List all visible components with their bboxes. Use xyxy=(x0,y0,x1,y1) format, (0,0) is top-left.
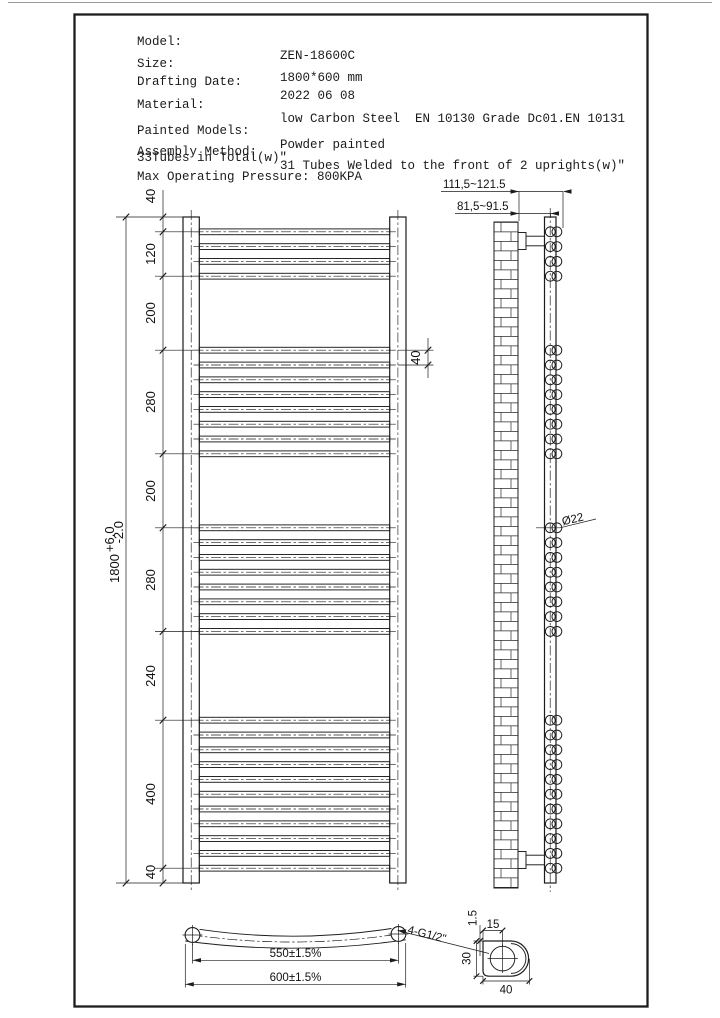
dim-overall-height: 1800+6.0-2.0 xyxy=(102,521,126,583)
tube-curve-centerline xyxy=(193,934,399,942)
front-view xyxy=(183,210,406,890)
tube-rows xyxy=(194,229,396,871)
dim-connections: 4-G1/2" xyxy=(406,924,447,945)
dim-offset: 15 xyxy=(487,919,500,931)
dim-centres: 550±1.5% xyxy=(270,948,322,960)
top-bracket-arm xyxy=(526,236,545,246)
dim-wall-to-tube-face: 111,5~121.5 xyxy=(443,179,506,191)
dim-segment-1: 120 xyxy=(143,243,158,265)
dim-width: 40 xyxy=(500,985,513,997)
detail-view: 1.5 15 30 40 xyxy=(462,910,533,997)
dim-arrow xyxy=(511,189,520,194)
dim-overall-width: 600±1.5% xyxy=(270,972,322,984)
dim-segment-8: 40 xyxy=(143,865,158,879)
dim-segment-3: 280 xyxy=(143,391,158,413)
dim-segment-5: 280 xyxy=(143,569,158,591)
dim-wall-to-upright: 81,5~91.5 xyxy=(457,201,508,213)
dim-segment-0: 40 xyxy=(143,189,158,203)
tube-curve-top xyxy=(200,929,392,937)
wall-section xyxy=(494,222,518,888)
dim-arrow xyxy=(551,211,560,216)
front-view-dimensions: 1800+6.0-2.0 40 120 200 280 200 280 240 … xyxy=(102,189,434,887)
technical-drawing: 1800+6.0-2.0 40 120 200 280 200 280 240 … xyxy=(0,0,720,1018)
dim-depth: 30 xyxy=(462,952,474,965)
drawing-sheet: Model: ZEN-18600C Size: 1800*600 mm Draf… xyxy=(0,0,720,1018)
dim-arrow xyxy=(397,982,406,986)
tube-curve-bottom xyxy=(185,940,405,948)
dim-arrow xyxy=(511,211,520,216)
dim-arrow xyxy=(563,189,572,194)
dim-segment-6: 240 xyxy=(143,665,158,687)
dim-arrow xyxy=(185,982,194,986)
drawing-frame xyxy=(75,15,648,1007)
bottom-bracket-arm xyxy=(526,855,545,865)
dim-tube-diameter: Ø22 xyxy=(561,512,585,529)
dim-arrow xyxy=(193,958,202,962)
dim-arrow xyxy=(390,958,399,962)
dim-tube-pitch: 40 xyxy=(408,350,423,364)
bottom-view: 550±1.5% 600±1.5% 4-G1/2" xyxy=(183,924,490,988)
side-view xyxy=(494,208,562,892)
tube-end-circles xyxy=(545,227,561,873)
dim-segment-4: 200 xyxy=(143,480,158,502)
top-bracket-plate xyxy=(518,233,526,250)
dim-segment-2: 200 xyxy=(143,302,158,324)
dim-segment-7: 400 xyxy=(143,783,158,805)
bottom-bracket-plate xyxy=(518,852,526,869)
dim-thickness: 1.5 xyxy=(468,910,480,926)
